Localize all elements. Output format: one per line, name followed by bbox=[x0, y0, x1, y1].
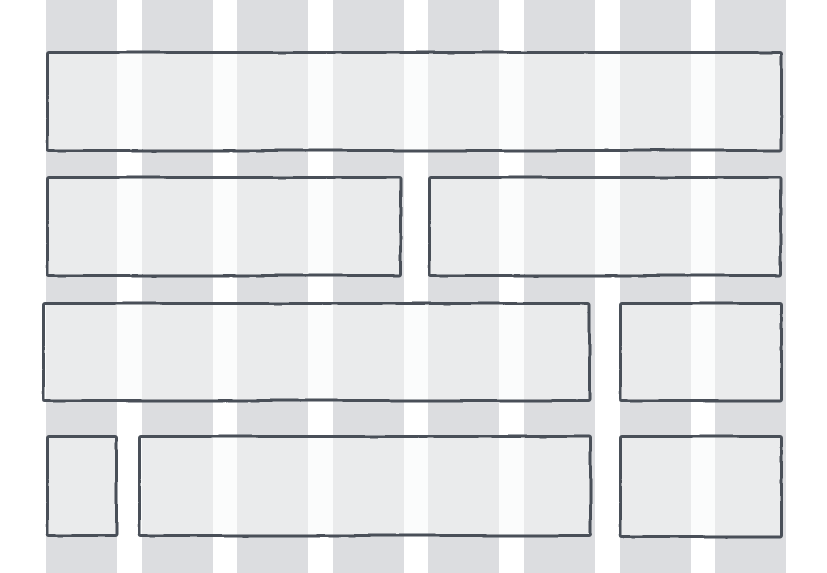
wireframe-box-section-left bbox=[46, 176, 402, 277]
wireframe-box-header bbox=[46, 51, 783, 152]
wireframe-canvas bbox=[0, 0, 827, 573]
wireframe-box-section-right bbox=[428, 176, 782, 277]
wireframe-box-content-bottom bbox=[138, 435, 592, 537]
wireframe-box-content-main bbox=[42, 302, 591, 402]
wireframe-box-sidebar-top bbox=[619, 302, 783, 402]
wireframe-boxes-layer bbox=[0, 0, 827, 573]
wireframe-box-avatar bbox=[46, 435, 118, 537]
wireframe-box-sidebar-bottom bbox=[619, 435, 783, 538]
